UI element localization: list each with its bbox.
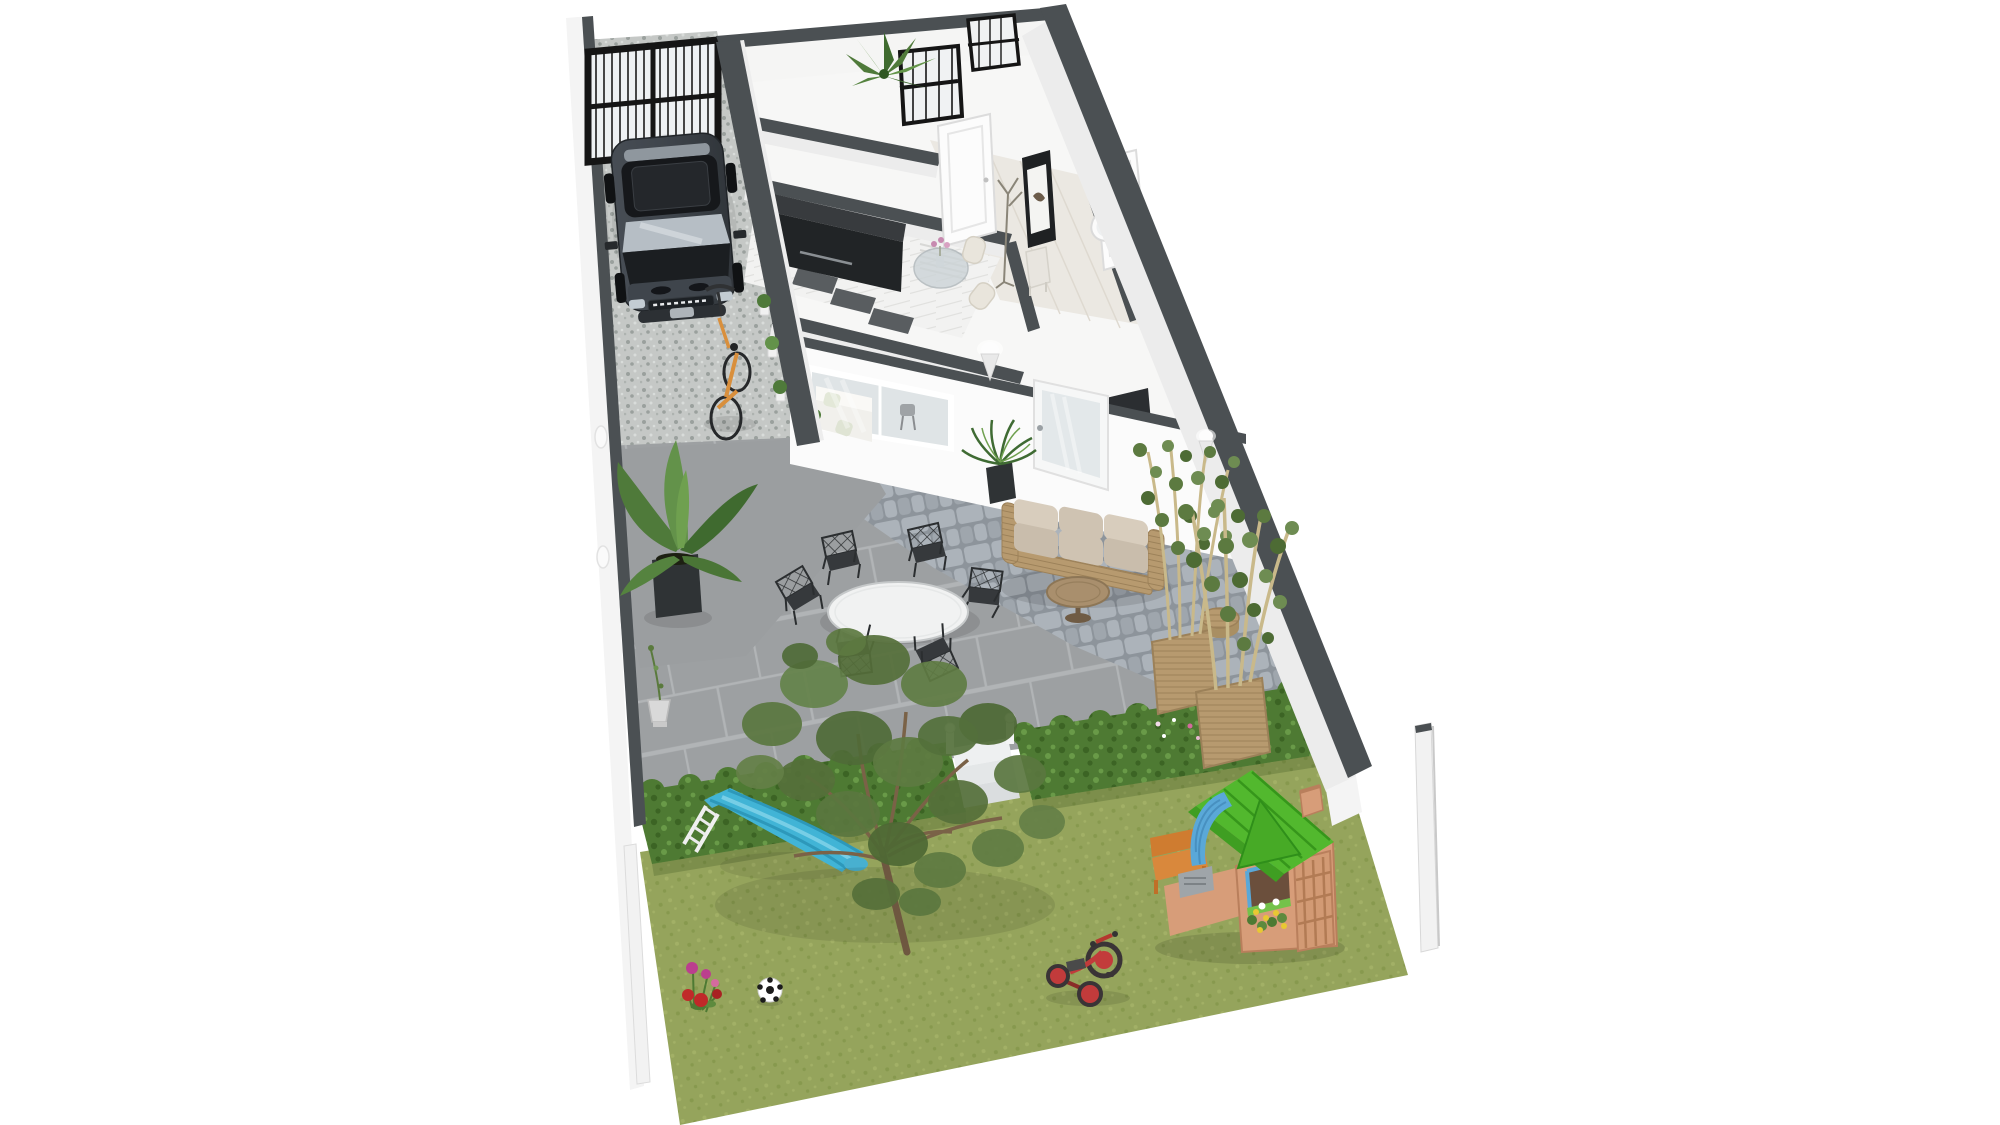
wall-lamp	[595, 426, 607, 448]
car-mirror	[733, 230, 747, 239]
trike-rear-wheel	[1079, 983, 1101, 1005]
wall-picture	[1022, 150, 1056, 248]
scene-canvas	[0, 0, 2000, 1125]
car-sunroof	[631, 161, 711, 211]
hallway-door	[938, 114, 996, 246]
wall-lamp	[597, 546, 609, 568]
bamboo-basket	[1196, 678, 1270, 768]
soccer-ball	[757, 977, 783, 1006]
floorplan-render	[0, 0, 2000, 1125]
door-handle	[1037, 425, 1043, 431]
playhouse-door	[1294, 851, 1334, 951]
grid-window	[900, 46, 962, 124]
vase	[936, 256, 944, 267]
trike-pedal	[1106, 972, 1114, 977]
bike-seat	[730, 343, 738, 351]
car-skid-plate	[670, 307, 695, 319]
indoor-chair-silhouette	[900, 404, 915, 416]
glass-table	[914, 248, 968, 288]
trike-rear-wheel	[1048, 966, 1068, 986]
car-mirror	[604, 241, 618, 250]
car-headlight	[629, 299, 646, 309]
grid-window	[968, 15, 1019, 70]
door-knob	[984, 178, 989, 183]
vase-flowers	[931, 241, 937, 247]
